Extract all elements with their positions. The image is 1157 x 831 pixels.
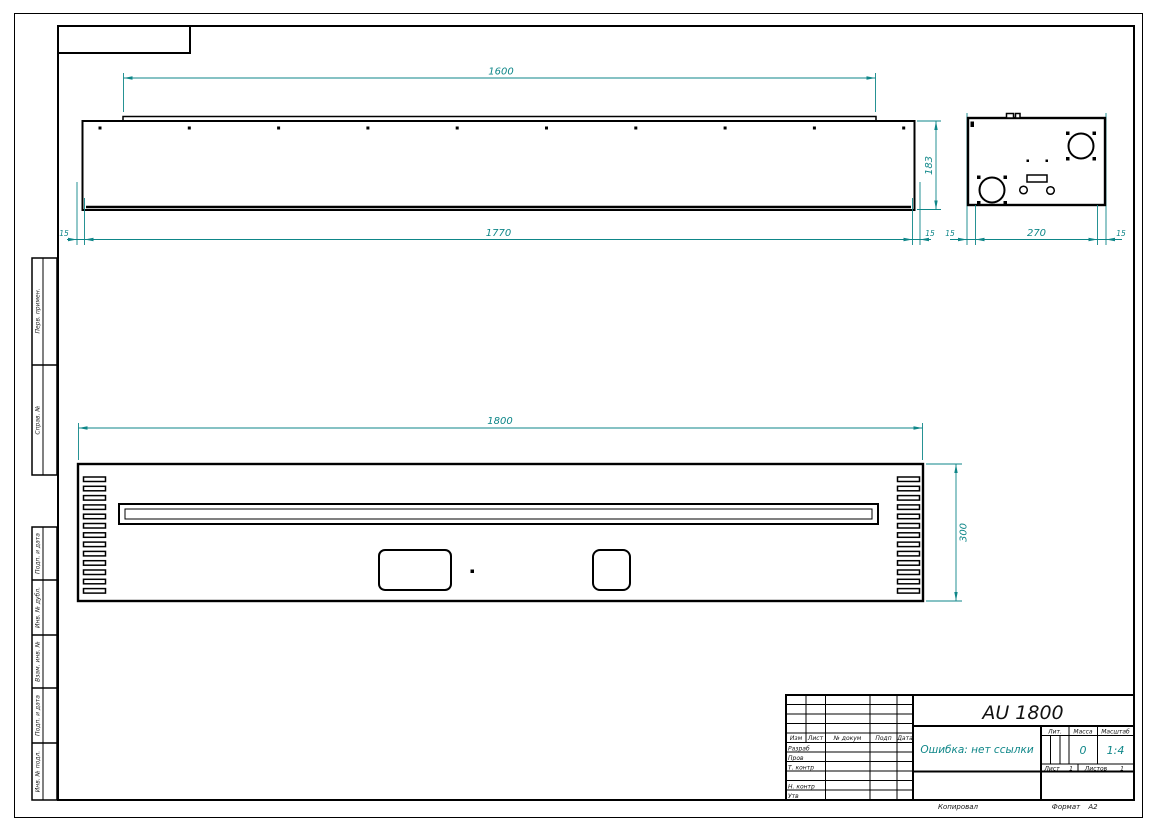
tb-col-data: Дата xyxy=(896,735,913,742)
vent-slot xyxy=(84,514,106,519)
hole-mark xyxy=(99,127,102,130)
hole-mark xyxy=(188,127,191,130)
side-slot-cutout xyxy=(1027,175,1047,182)
fan-screw-mark xyxy=(1093,132,1097,136)
vent-slot xyxy=(898,505,920,510)
side-view: 15 270 15 xyxy=(945,113,1126,245)
dim-bottom-width: 1800 xyxy=(79,416,923,460)
side-corner-mark xyxy=(971,122,975,128)
format-label: Формат xyxy=(1052,803,1081,811)
vent-slot xyxy=(898,542,920,547)
format-value: А2 xyxy=(1087,803,1098,811)
drawing-title: AU 1800 xyxy=(980,702,1063,724)
top-designation-stamp xyxy=(58,26,190,53)
left-margin-stamps: Перв. примен. Справ. № Подп. и дата Инв.… xyxy=(32,258,57,800)
side-dot-mark xyxy=(1027,160,1030,163)
tb-row-nkontr: Н. контр xyxy=(788,784,815,791)
dim-label-1600: 1600 xyxy=(488,67,513,78)
doc-note: Ошибка: нет ссылки xyxy=(920,744,1033,756)
vent-slot xyxy=(898,496,920,501)
front-view: 1600 1770 15 15 183 xyxy=(59,67,941,246)
vent-slot xyxy=(84,533,106,538)
bottom-body xyxy=(78,464,923,601)
vent-slot xyxy=(898,579,920,584)
margin-label-perv-primen: Перв. примен. xyxy=(35,288,42,333)
vent-slot xyxy=(84,579,106,584)
drawing-sheet: Перв. примен. Справ. № Подп. и дата Инв.… xyxy=(0,0,1157,831)
vent-slot xyxy=(898,486,920,491)
dim-front-height: 183 xyxy=(917,121,941,210)
vent-slot xyxy=(84,570,106,575)
tb-scale-value: 1:4 xyxy=(1107,744,1125,757)
side-dot-mark xyxy=(1046,160,1049,163)
dim-side-depth: 15 270 15 xyxy=(945,205,1126,245)
tb-row-razrab: Разраб xyxy=(788,746,810,753)
vent-slot xyxy=(898,570,920,575)
margin-label-inv-podl: Инв. № подл. xyxy=(35,751,42,792)
margin-label-sprav-no: Справ. № xyxy=(35,405,42,434)
vent-slot xyxy=(84,561,106,566)
hole-mark xyxy=(813,127,816,130)
cad-drawing-canvas: Перв. примен. Справ. № Подп. и дата Инв.… xyxy=(0,0,1157,831)
dim-label-side-15-right: 15 xyxy=(1116,229,1126,238)
side-small-hole xyxy=(1020,186,1028,194)
dim-label-side-15-left: 15 xyxy=(945,229,955,238)
tb-sheet-value: 1 xyxy=(1069,766,1073,773)
vent-slot xyxy=(898,514,920,519)
margin-label-inv-dubl: Инв. № дубл. xyxy=(35,587,42,628)
title-block: Изм Лист № докум Подп Дата Разраб Пров Т… xyxy=(786,695,1134,811)
vent-slot xyxy=(898,561,920,566)
vent-slot xyxy=(84,542,106,547)
tb-col-podp: Подп xyxy=(875,735,891,742)
dim-label-15-left: 15 xyxy=(59,229,69,238)
tb-sheets-label: Листов xyxy=(1084,766,1108,773)
dim-label-1800: 1800 xyxy=(487,416,512,427)
rect-opening-left xyxy=(379,550,451,590)
dim-bottom-depth: 300 xyxy=(926,464,970,601)
fan-screw-mark xyxy=(1066,132,1070,136)
front-body xyxy=(83,121,915,210)
fan-screw-mark xyxy=(977,201,981,205)
hole-mark xyxy=(366,127,369,130)
vent-slot xyxy=(898,551,920,556)
tb-scale-label: Масштаб xyxy=(1101,729,1130,736)
rect-opening-right xyxy=(593,550,630,590)
hole-mark xyxy=(634,127,637,130)
fan-screw-mark xyxy=(1066,157,1070,161)
dim-label-300: 300 xyxy=(959,523,970,542)
dim-label-183: 183 xyxy=(924,156,935,175)
vent-slot xyxy=(84,589,106,594)
fan-screw-mark xyxy=(1004,201,1008,205)
tb-mass-label: Масса xyxy=(1073,729,1092,736)
tb-row-tkontr: Т. контр xyxy=(788,765,814,772)
bottom-dot-mark xyxy=(471,570,475,574)
hole-mark xyxy=(724,127,727,130)
margin-label-podp-data-1: Подп. и дата xyxy=(35,533,42,574)
tb-mass-value: 0 xyxy=(1080,744,1087,757)
side-top-tab-1 xyxy=(1007,114,1014,119)
fan-screw-mark xyxy=(1093,157,1097,161)
vent-slot xyxy=(898,589,920,594)
tb-col-ndoc: № докум xyxy=(833,735,862,742)
fan-screw-mark xyxy=(1004,176,1008,180)
margin-label-podp-data-2: Подп. и дата xyxy=(35,695,42,736)
vent-slot xyxy=(898,477,920,482)
vent-slot xyxy=(84,551,106,556)
vent-slot xyxy=(84,477,106,482)
side-body xyxy=(968,118,1105,205)
vent-slot xyxy=(898,533,920,538)
vent-slot xyxy=(84,505,106,510)
side-top-tab-2 xyxy=(1016,114,1021,119)
hole-mark xyxy=(456,127,459,130)
tb-lit-label: Лит. xyxy=(1047,729,1062,736)
tb-row-utv: Утв xyxy=(788,793,799,800)
long-slot-outer xyxy=(119,504,878,524)
tb-col-izm: Изм xyxy=(790,735,803,742)
hole-mark xyxy=(545,127,548,130)
vent-slot xyxy=(84,496,106,501)
margin-label-vzam-inv: Взам. инв. № xyxy=(35,641,42,682)
dim-label-1770: 1770 xyxy=(486,228,511,239)
vent-slot xyxy=(898,524,920,529)
tb-col-list: Лист xyxy=(807,735,824,742)
tb-sheets-value: 1 xyxy=(1120,766,1124,773)
dim-front-width-top: 1600 xyxy=(124,67,876,113)
bottom-view: 1800 300 xyxy=(78,416,970,601)
vent-slot xyxy=(84,486,106,491)
vent-slot xyxy=(84,524,106,529)
copied-label: Копировал xyxy=(938,803,979,811)
hole-mark xyxy=(902,127,905,130)
dim-label-270: 270 xyxy=(1027,228,1046,239)
hole-mark xyxy=(277,127,280,130)
side-small-hole xyxy=(1047,187,1055,195)
dim-label-15-right: 15 xyxy=(925,229,935,238)
tb-sheet-label: Лист xyxy=(1043,766,1060,773)
tb-row-prov: Пров xyxy=(788,755,804,762)
fan-screw-mark xyxy=(977,176,981,180)
